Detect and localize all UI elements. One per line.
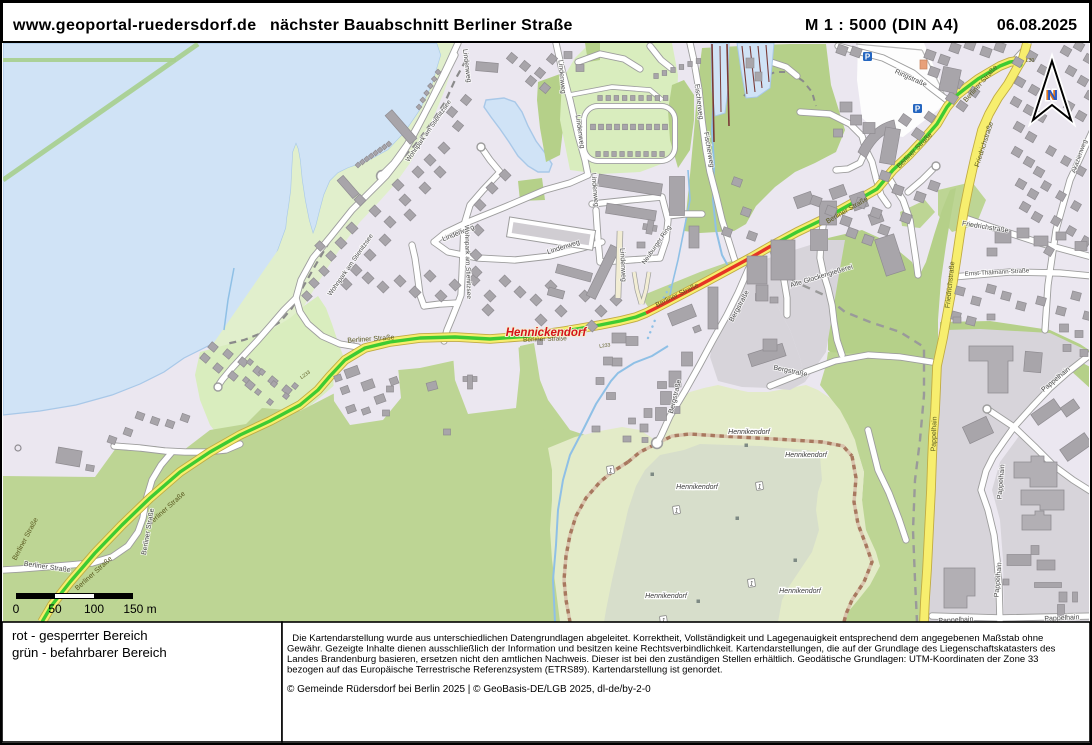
svg-text:Hennikendorf: Hennikendorf: [779, 588, 822, 595]
svg-text:Gewähr. Gezeigte Inhalte diene: Gewähr. Gezeigte Inhalte dienen ausschli…: [287, 644, 1056, 655]
svg-text:06.08.2025: 06.08.2025: [997, 17, 1077, 34]
svg-text:Hennikendorf: Hennikendorf: [728, 429, 771, 436]
svg-text:M 1 : 5000 (DIN A4): M 1 : 5000 (DIN A4): [805, 17, 959, 34]
svg-text:1: 1: [675, 509, 678, 515]
svg-text:grün - befahrbarer Bereich: grün - befahrbarer Bereich: [12, 645, 167, 660]
svg-text:0: 0: [13, 602, 20, 616]
svg-text:Hennikendorf: Hennikendorf: [785, 452, 828, 459]
svg-text:L30: L30: [1026, 58, 1035, 64]
svg-text:Hennickendorf: Hennickendorf: [506, 327, 588, 339]
svg-text:Landes Brandenburg basieren, e: Landes Brandenburg basieren, ersetzen ni…: [287, 654, 1038, 665]
svg-text:Hennikendorf: Hennikendorf: [676, 484, 719, 491]
svg-text:P: P: [915, 104, 921, 113]
svg-text:© Gemeinde Rüdersdorf bei Berl: © Gemeinde Rüdersdorf bei Berlin 2025 | …: [287, 684, 651, 695]
svg-text:www.geoportal-ruedersdorf.de: www.geoportal-ruedersdorf.de: [12, 17, 257, 34]
svg-text:100: 100: [84, 602, 104, 616]
svg-text:N: N: [1047, 87, 1058, 104]
svg-text:P: P: [865, 52, 871, 61]
svg-text:50: 50: [48, 602, 62, 616]
svg-text:rot - gesperrter Bereich: rot - gesperrter Bereich: [12, 628, 148, 643]
svg-text:1: 1: [609, 469, 612, 475]
svg-text:Pappelhain: Pappelhain: [930, 416, 938, 451]
svg-text:Die Kartendarstellung wurde au: Die Kartendarstellung wurde aus untersch…: [287, 633, 1043, 644]
svg-text:nächster Bauabschnitt Berliner: nächster Bauabschnitt Berliner Straße: [270, 17, 573, 34]
svg-text:1: 1: [758, 485, 761, 491]
svg-text:Hennikendorf: Hennikendorf: [645, 593, 688, 600]
svg-text:bezogen auf das Europäische Te: bezogen auf das Europäische Terrestrisch…: [287, 665, 723, 676]
svg-text:1: 1: [750, 582, 753, 588]
svg-text:150 m: 150 m: [123, 602, 156, 616]
